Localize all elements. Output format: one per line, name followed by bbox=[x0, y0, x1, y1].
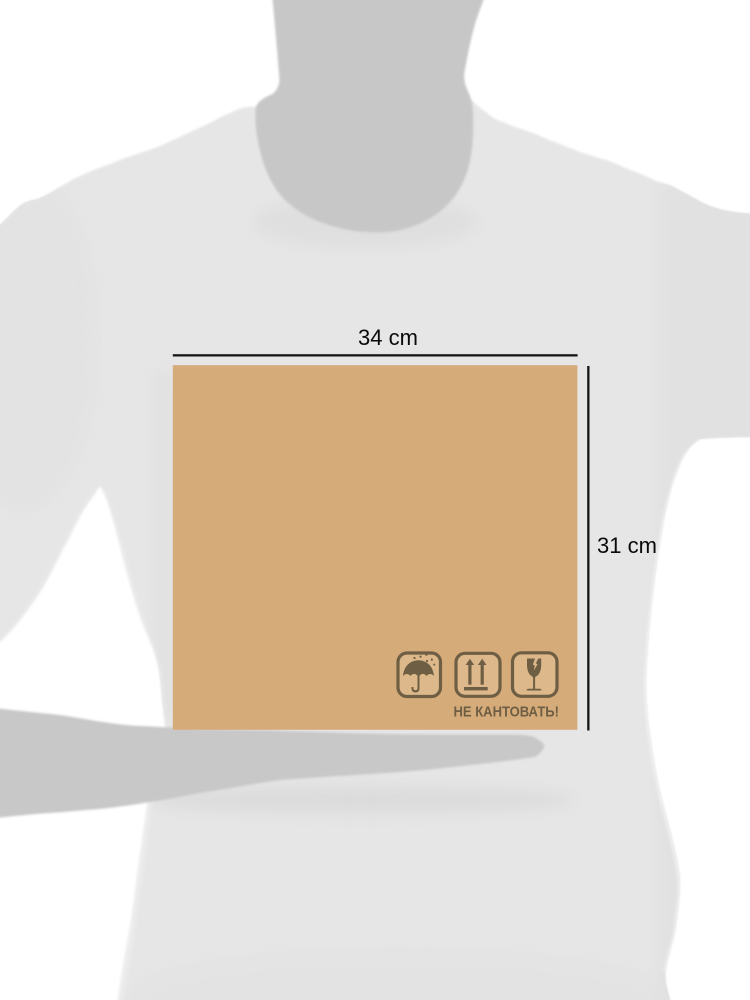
svg-text:31 cm: 31 cm bbox=[597, 533, 657, 558]
svg-text:34 cm: 34 cm bbox=[358, 325, 418, 350]
svg-text:НЕ КАНТОВАТЬ!: НЕ КАНТОВАТЬ! bbox=[454, 704, 560, 721]
